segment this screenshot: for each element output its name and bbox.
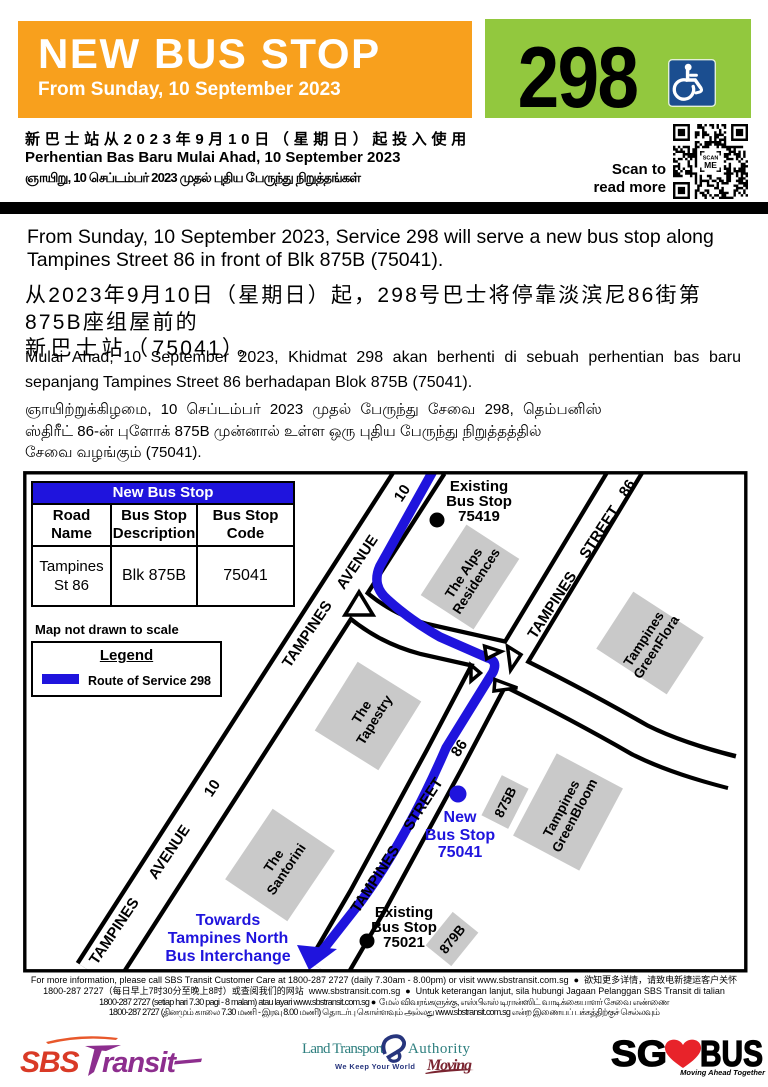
svg-text:SBS: SBS [20, 1046, 80, 1079]
svg-text:New: New [444, 809, 477, 826]
svg-text:Bus Interchange: Bus Interchange [165, 948, 290, 965]
svg-text:Towards: Towards [196, 912, 261, 929]
svg-text:75021: 75021 [383, 934, 425, 951]
svg-text:Authority: Authority [408, 1041, 471, 1057]
svg-text:SG: SG [611, 1033, 667, 1074]
svg-text:Moving Ahead Together: Moving Ahead Together [680, 1068, 766, 1077]
svg-text:Land Transport: Land Transport [302, 1041, 385, 1057]
svg-text:ME: ME [704, 160, 717, 170]
svg-text:75041: 75041 [438, 844, 483, 861]
svg-text:Tampines North: Tampines North [168, 930, 289, 947]
svg-text:ransit: ransit [102, 1047, 177, 1079]
svg-text:We Keep Your World: We Keep Your World [335, 1062, 415, 1071]
svg-text:75419: 75419 [458, 508, 500, 525]
svg-text:Bus Stop: Bus Stop [425, 827, 495, 844]
